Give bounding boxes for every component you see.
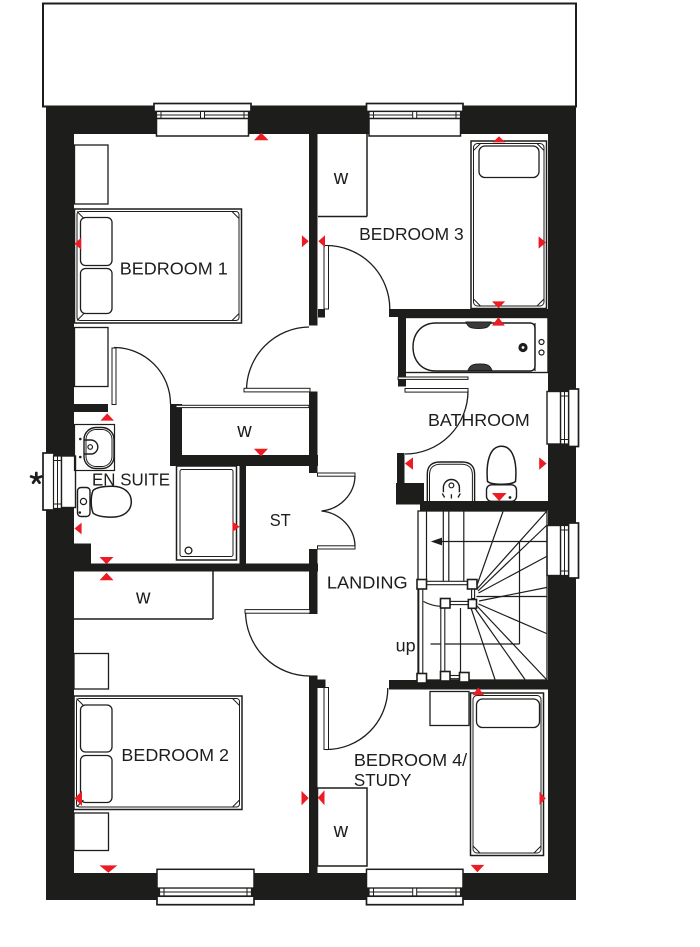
svg-text:LANDING: LANDING bbox=[327, 572, 408, 592]
svg-text:w: w bbox=[135, 587, 151, 609]
svg-text:w: w bbox=[333, 820, 349, 842]
svg-text:w: w bbox=[333, 167, 349, 189]
svg-text:BEDROOM 4/: BEDROOM 4/ bbox=[354, 750, 467, 770]
svg-text:BEDROOM 1: BEDROOM 1 bbox=[120, 259, 228, 279]
svg-text:BATHROOM: BATHROOM bbox=[428, 410, 530, 430]
svg-text:BEDROOM 3: BEDROOM 3 bbox=[359, 224, 464, 244]
svg-text:EN SUITE: EN SUITE bbox=[92, 470, 170, 490]
svg-text:ST: ST bbox=[270, 510, 291, 530]
svg-text:w: w bbox=[236, 420, 252, 442]
svg-text:STUDY: STUDY bbox=[354, 770, 412, 790]
svg-text:BEDROOM 2: BEDROOM 2 bbox=[121, 745, 229, 765]
svg-text:up: up bbox=[396, 636, 416, 656]
